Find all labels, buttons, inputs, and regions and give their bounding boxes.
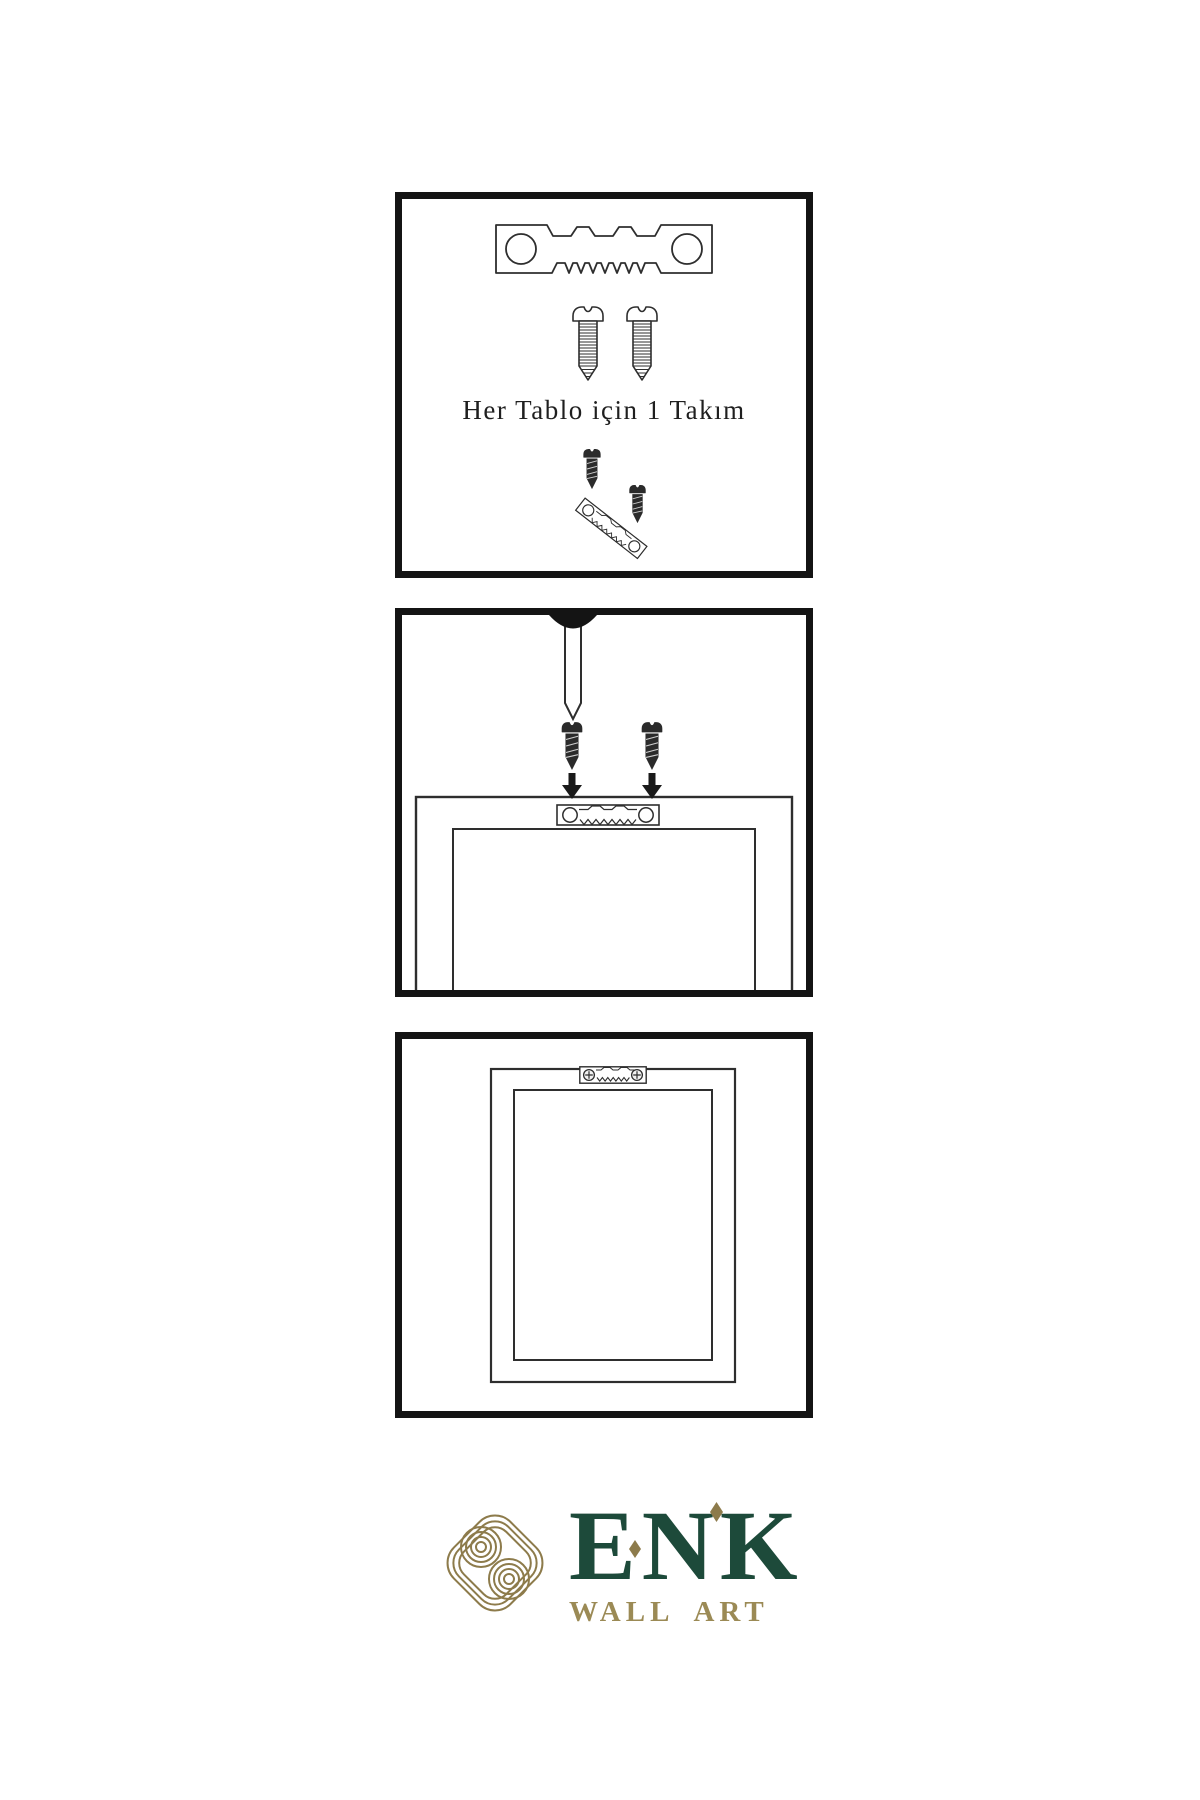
screw-into-hanger-icon: [576, 449, 647, 558]
screw-icon: [630, 485, 646, 522]
brand-logo: ENK WALL ART: [437, 1496, 804, 1627]
screw-icon: [562, 723, 582, 769]
screw-icon: [642, 723, 662, 769]
sawtooth-hanger-icon: [557, 805, 659, 825]
step-1-panel: Her Tablo için 1 Takım: [395, 192, 813, 578]
step-2-panel: [395, 608, 813, 997]
instruction-sheet: Her Tablo için 1 Takım: [0, 0, 1200, 1800]
frame-inner-outline: [514, 1090, 712, 1360]
screw-icon: [584, 449, 600, 488]
brand-text: ENK WALL ART: [569, 1496, 804, 1627]
brand-tagline: WALL ART: [569, 1597, 804, 1627]
screw-icon: [627, 307, 657, 380]
sawtooth-hanger-icon: [496, 225, 712, 273]
nail-hole-icon: [549, 615, 597, 629]
screw-icon: [573, 307, 603, 380]
arrow-down-icon: [562, 773, 582, 799]
step-1-caption: Her Tablo için 1 Takım: [402, 395, 806, 426]
arrow-down-icon: [642, 773, 662, 799]
step-3-panel: [395, 1032, 813, 1418]
step-3-illustration: [402, 1039, 806, 1411]
knot-logo-icon: [437, 1500, 553, 1627]
frame-inner-outline: [453, 829, 755, 990]
step-1-illustration: [402, 199, 806, 571]
step-2-illustration: [402, 615, 806, 990]
brand-name: ENK: [569, 1496, 804, 1596]
sawtooth-hanger-screwed-icon: [580, 1067, 646, 1083]
wall-nail-icon: [565, 617, 581, 719]
